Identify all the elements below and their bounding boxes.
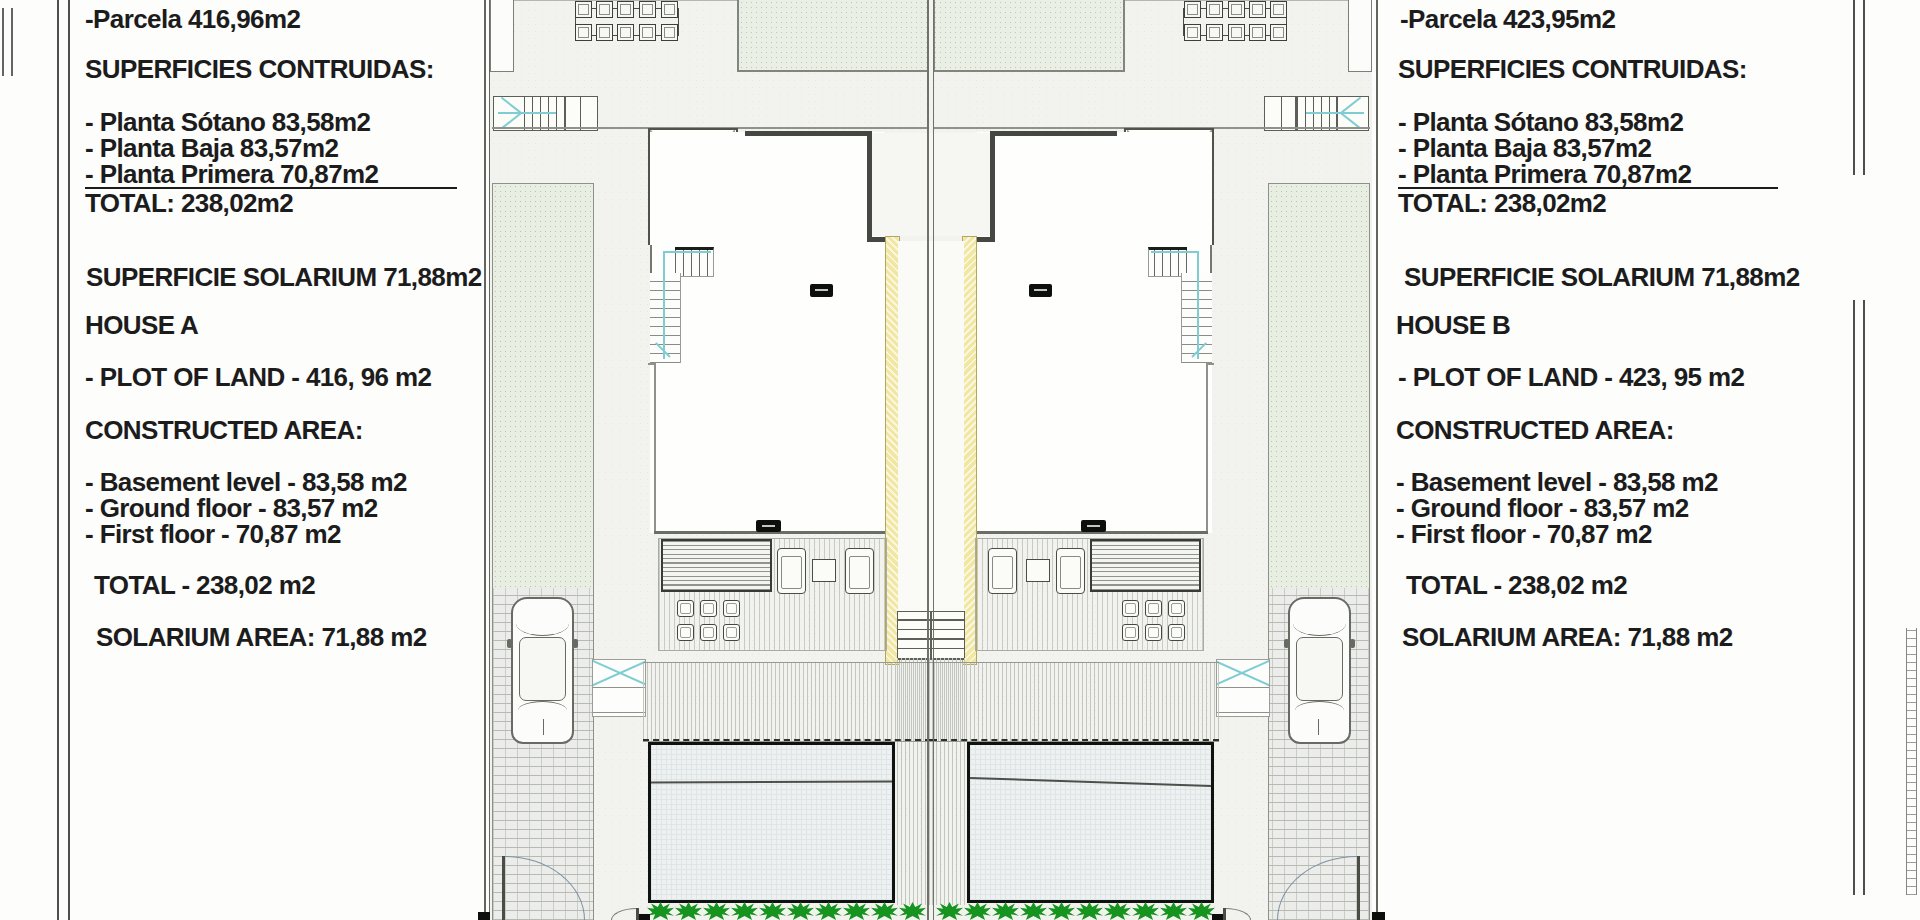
- room-label-tag: [756, 520, 781, 532]
- car-rear-window: [1295, 701, 1344, 720]
- chair-icon: [575, 24, 592, 41]
- pool-edge-line: [643, 739, 931, 741]
- chair-icon: [1145, 624, 1162, 641]
- chair-icon: [575, 1, 592, 18]
- car-mirror: [1284, 639, 1289, 648]
- car-windshield: [516, 611, 569, 636]
- bush-icon: [1020, 902, 1047, 920]
- driveway-gate-leaf: [1357, 856, 1360, 920]
- chair-icon: [1168, 600, 1185, 617]
- entry-steps: [931, 611, 965, 660]
- pool-waterline: [651, 781, 892, 784]
- plot-of-land-b: - PLOT OF LAND - 423, 95 m2: [1398, 364, 1744, 390]
- left-sheet-border-line: [57, 0, 59, 920]
- parked-car: [1288, 597, 1351, 744]
- bush-icon: [964, 902, 991, 920]
- left-edge-mark: [11, 8, 13, 76]
- wall-stub: [639, 914, 650, 920]
- bush-icon: [787, 902, 814, 920]
- bush-icon: [647, 902, 674, 920]
- chair-icon: [1270, 1, 1287, 18]
- hedge-row: [647, 902, 931, 920]
- side-table: [812, 559, 836, 582]
- stair-guide-line: [1151, 251, 1199, 253]
- chair-icon: [1168, 624, 1185, 641]
- first-floor-a: - First floor - 70,87 m2: [85, 521, 341, 547]
- front-wall: [745, 131, 872, 136]
- direction-arrow: [1341, 97, 1361, 113]
- superficie-solarium-a: SUPERFICIE SOLARIUM 71,88m2: [86, 264, 482, 290]
- chair-icon: [639, 1, 656, 18]
- solarium-area-a: SOLARIUM AREA: 71,88 m2: [96, 624, 427, 650]
- right-sheet-border-line: [1863, 300, 1865, 895]
- bush-icon: [1188, 902, 1215, 920]
- bush-icon: [815, 902, 842, 920]
- side-gate: [592, 659, 646, 717]
- armchair-icon: [1056, 548, 1085, 594]
- pergola-louvers: [1090, 539, 1201, 592]
- chair-icon: [1206, 1, 1223, 18]
- chair-icon: [1249, 24, 1266, 41]
- bush-icon: [759, 902, 786, 920]
- left-wall: [654, 365, 656, 533]
- house-b-title: HOUSE B: [1396, 312, 1510, 338]
- car-windshield: [1293, 611, 1346, 636]
- house-b-floor-plan: [931, 0, 1372, 920]
- room-label-tag: [1081, 520, 1106, 532]
- gate-rail: [593, 687, 645, 688]
- bush-icon: [871, 902, 898, 920]
- entry-porch: [872, 133, 931, 236]
- chair-icon: [617, 1, 634, 18]
- right-sheet-border-line: [1853, 0, 1855, 175]
- constructed-title-b: CONSTRUCTED AREA:: [1396, 417, 1674, 443]
- bush-icon: [703, 902, 730, 920]
- room-label-tag: [1029, 284, 1052, 297]
- plot-boundary-right: [1376, 0, 1378, 920]
- chair-icon: [596, 24, 613, 41]
- bush-icon: [936, 902, 963, 920]
- chair-icon: [617, 24, 634, 41]
- stair-guide-line: [663, 251, 711, 253]
- basement-b: - Basement level - 83,58 m2: [1396, 469, 1718, 495]
- ground-floor-a: - Ground floor - 83,57 m2: [85, 495, 378, 521]
- party-boundary-line: [933, 0, 935, 920]
- car-mirror: [507, 639, 512, 648]
- chair-icon: [661, 1, 678, 18]
- car-mirror: [1350, 639, 1355, 648]
- entrance-stairs: [1264, 96, 1369, 131]
- bush-icon: [1132, 902, 1159, 920]
- lawn-strip: [492, 183, 594, 590]
- stair-guide-line: [663, 251, 665, 359]
- direction-arrow: [498, 112, 556, 114]
- chair-icon: [1184, 1, 1201, 18]
- pool-waterline: [970, 777, 1211, 787]
- gate-rail: [1217, 712, 1269, 713]
- armchair-icon: [777, 548, 806, 594]
- bush-icon: [899, 902, 926, 920]
- plot-boundary-left: [484, 0, 486, 920]
- gravel-area: [737, 0, 929, 72]
- side-gate: [1216, 659, 1270, 717]
- planta-baja-b: - Planta Baja 83,57m2: [1398, 135, 1651, 161]
- left-wall: [1206, 365, 1208, 533]
- parcela-b: -Parcela 423,95m2: [1400, 6, 1615, 32]
- pergola-louvers: [661, 539, 772, 592]
- chair-icon: [1228, 24, 1245, 41]
- right-edge-wall-section: [1906, 628, 1917, 895]
- car-roof: [519, 637, 566, 701]
- house-a-title: HOUSE A: [85, 312, 198, 338]
- chair-icon: [596, 1, 613, 18]
- bush-icon: [1048, 902, 1075, 920]
- bush-icon: [1160, 902, 1187, 920]
- site-plan-sheet: -Parcela 416,96m2 SUPERFICIES CONTRUIDAS…: [0, 0, 1920, 920]
- plot-of-land-a: - PLOT OF LAND - 416, 96 m2: [85, 364, 431, 390]
- gate-rail: [593, 712, 645, 713]
- superficies-title-a: SUPERFICIES CONTRUIDAS:: [85, 56, 434, 82]
- entry-porch: [931, 133, 990, 236]
- chair-icon: [661, 24, 678, 41]
- room-label-tag: [810, 284, 833, 297]
- total-en-a: TOTAL - 238,02 m2: [94, 572, 315, 598]
- planta-sotano-b: - Planta Sótano 83,58m2: [1398, 109, 1683, 135]
- swimming-pool: [967, 742, 1214, 903]
- total-es-a: TOTAL: 238,02m2: [85, 190, 293, 216]
- interior-staircase: [1117, 245, 1212, 367]
- outdoor-dining-set-front: [575, 2, 679, 41]
- chair-icon: [723, 600, 740, 617]
- entry-steps: [897, 611, 931, 660]
- interior-staircase: [650, 245, 745, 367]
- bush-icon: [675, 902, 702, 920]
- planta-baja-a: - Planta Baja 83,57m2: [85, 135, 338, 161]
- car-mirror: [573, 639, 578, 648]
- patio-band: [931, 662, 1219, 742]
- basement-a: - Basement level - 83,58 m2: [85, 469, 407, 495]
- solarium-area-b: SOLARIUM AREA: 71,88 m2: [1402, 624, 1733, 650]
- site-plan-drawing: [490, 0, 1372, 920]
- chair-icon: [677, 600, 694, 617]
- porch-side-wall: [990, 131, 995, 242]
- porch-jog-wall: [977, 237, 990, 242]
- entrance-stairs: [493, 96, 598, 131]
- chair-icon: [1206, 24, 1223, 41]
- constructed-title-a: CONSTRUCTED AREA:: [85, 417, 363, 443]
- house-a-floor-plan: [490, 0, 931, 920]
- car-hood-line: [543, 719, 545, 735]
- car-rear-window: [518, 701, 567, 720]
- outdoor-dining-set-front: [1183, 2, 1287, 41]
- party-boundary-line: [927, 0, 929, 920]
- patio-band: [643, 662, 931, 742]
- pool-edge-line: [931, 739, 1219, 741]
- car-roof: [1296, 637, 1343, 701]
- planta-primera-a: - Planta Primera 70,87m2: [85, 161, 457, 189]
- left-sheet-border-line: [68, 0, 70, 920]
- chair-icon: [1122, 624, 1139, 641]
- right-sheet-border-line: [1863, 0, 1865, 175]
- bush-icon: [992, 902, 1019, 920]
- side-table: [1026, 559, 1050, 582]
- stair-lower-flight: [650, 273, 681, 363]
- car-hood-line: [1318, 719, 1320, 735]
- chair-icon: [1249, 1, 1266, 18]
- total-es-b: TOTAL: 238,02m2: [1398, 190, 1606, 216]
- gravel-area: [933, 0, 1125, 72]
- armchair-icon: [988, 548, 1017, 594]
- chair-icon: [677, 624, 694, 641]
- armchair-icon: [845, 548, 874, 594]
- planta-sotano-a: - Planta Sótano 83,58m2: [85, 109, 370, 135]
- superficie-solarium-b: SUPERFICIE SOLARIUM 71,88m2: [1404, 264, 1800, 290]
- bush-icon: [843, 902, 870, 920]
- boundary-corner-rect: [1348, 0, 1372, 72]
- parcela-a: -Parcela 416,96m2: [85, 6, 300, 32]
- front-wall: [990, 131, 1117, 136]
- stair-treads: [1267, 97, 1297, 130]
- chair-icon: [1145, 600, 1162, 617]
- chair-icon: [700, 624, 717, 641]
- pedestrian-gate-swing: [1225, 908, 1251, 920]
- left-edge-mark: [2, 8, 4, 76]
- porch-side-wall: [867, 131, 872, 242]
- chair-icon: [639, 24, 656, 41]
- hedge-row: [931, 902, 1215, 920]
- first-floor-b: - First floor - 70,87 m2: [1396, 521, 1652, 547]
- gate-rail: [1217, 687, 1269, 688]
- entry-walkway: [931, 241, 964, 611]
- pedestrian-gate-leaf: [1224, 908, 1227, 920]
- boundary-corner-rect: [490, 0, 514, 72]
- porch-jog-wall: [872, 237, 885, 242]
- stair-guide-line: [1197, 251, 1199, 359]
- bush-icon: [1076, 902, 1103, 920]
- parked-car: [511, 597, 574, 744]
- planta-primera-b: - Planta Primera 70,87m2: [1398, 161, 1778, 189]
- chair-icon: [700, 600, 717, 617]
- bush-icon: [1104, 902, 1131, 920]
- direction-arrow: [501, 97, 521, 113]
- wall-stub: [1212, 914, 1223, 920]
- chair-icon: [1122, 600, 1139, 617]
- chair-icon: [1270, 24, 1287, 41]
- total-en-b: TOTAL - 238,02 m2: [1406, 572, 1627, 598]
- direction-arrow: [1306, 112, 1364, 114]
- swimming-pool: [648, 742, 895, 903]
- chair-icon: [723, 624, 740, 641]
- superficies-title-b: SUPERFICIES CONTRUIDAS:: [1398, 56, 1747, 82]
- pedestrian-gate-swing: [611, 908, 637, 920]
- ground-floor-b: - Ground floor - 83,57 m2: [1396, 495, 1689, 521]
- chair-icon: [1228, 1, 1245, 18]
- lawn-strip: [1268, 183, 1370, 590]
- stair-treads: [565, 97, 595, 130]
- right-sheet-border-line: [1853, 300, 1855, 895]
- bush-icon: [731, 902, 758, 920]
- chair-icon: [1184, 24, 1201, 41]
